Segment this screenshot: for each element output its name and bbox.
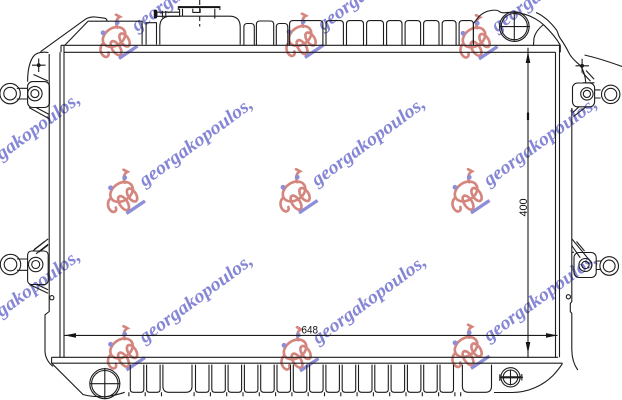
svg-text:648: 648 [302,325,319,337]
svg-text:400: 400 [518,199,530,217]
